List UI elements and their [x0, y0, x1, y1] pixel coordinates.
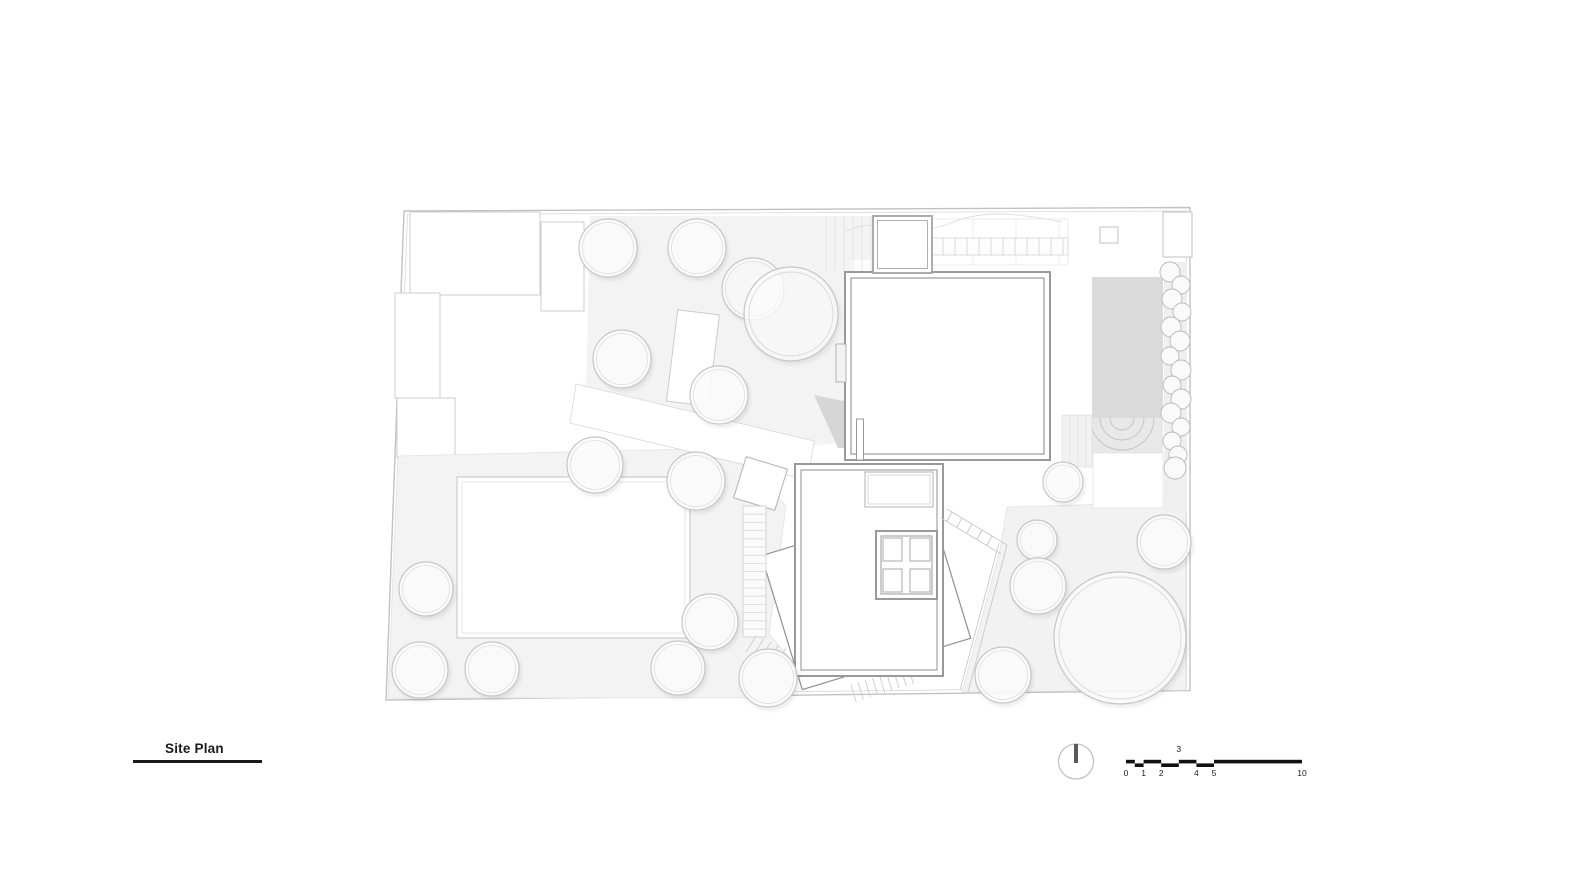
scale-label-5: 5 — [1212, 768, 1217, 778]
large-tree — [744, 267, 838, 361]
corner-structure — [1163, 212, 1192, 257]
scale-bar-segment — [1126, 760, 1135, 764]
tree — [392, 642, 448, 698]
main-house-interior-wall — [857, 419, 864, 460]
tree — [739, 649, 797, 707]
scale-bar-segment — [1196, 763, 1214, 767]
neighbor-building-3 — [397, 398, 455, 458]
tree — [682, 594, 738, 650]
tree — [651, 641, 705, 695]
pool-side-paving — [1062, 415, 1092, 467]
scale-label-2: 2 — [1159, 768, 1164, 778]
guest-house-window — [876, 531, 937, 599]
tree — [593, 330, 651, 388]
tree — [1137, 515, 1191, 569]
neighbor-building-1 — [410, 212, 540, 295]
pool-terrace — [1092, 418, 1163, 453]
tree — [399, 562, 453, 616]
tree — [1017, 520, 1057, 560]
scale-bar — [1126, 760, 1302, 767]
neighbor-buildings — [395, 212, 584, 458]
scale-bar-segment — [1214, 760, 1302, 764]
scale-label-4: 4 — [1194, 768, 1199, 778]
tree — [1043, 462, 1083, 502]
pool-deck — [1093, 453, 1163, 508]
guest-house-skylight — [865, 472, 933, 507]
scale-bar-segment — [1144, 760, 1162, 764]
tree — [975, 647, 1031, 703]
scale-label-3: 3 — [1176, 744, 1181, 754]
tree — [668, 219, 726, 277]
swimming-pool — [1092, 277, 1163, 418]
north-arrow-needle — [1074, 744, 1078, 763]
tree — [690, 366, 748, 424]
tree — [567, 437, 623, 493]
scale-bar-segment — [1161, 763, 1179, 767]
main-house-entry — [873, 216, 932, 273]
drawing-title: Site Plan — [165, 741, 224, 756]
site-plan-drawing — [0, 0, 1582, 890]
scale-label-1: 1 — [1141, 768, 1146, 778]
title-underline — [133, 760, 262, 763]
main-house-side-door — [836, 344, 846, 382]
scale-bar-segment — [1135, 763, 1144, 767]
scale-label-10: 10 — [1297, 768, 1306, 778]
pergola-strip — [931, 219, 1068, 265]
neighbor-building-2 — [395, 293, 440, 398]
north-arrow — [1059, 744, 1094, 779]
utility-square — [1100, 227, 1118, 243]
scale-bar-segment — [1179, 760, 1197, 764]
scale-label-0: 0 — [1124, 768, 1129, 778]
site-plan-sheet: Site Plan 0 1 2 3 4 5 10 — [0, 0, 1582, 890]
tree — [579, 219, 637, 277]
tree — [667, 452, 725, 510]
large-tree — [1054, 572, 1186, 704]
tree — [1010, 558, 1066, 614]
main-house — [836, 272, 1050, 460]
tree — [465, 642, 519, 696]
lawn-panel — [457, 477, 690, 638]
neighbor-building-4 — [541, 222, 584, 311]
exterior-stair — [743, 506, 766, 637]
